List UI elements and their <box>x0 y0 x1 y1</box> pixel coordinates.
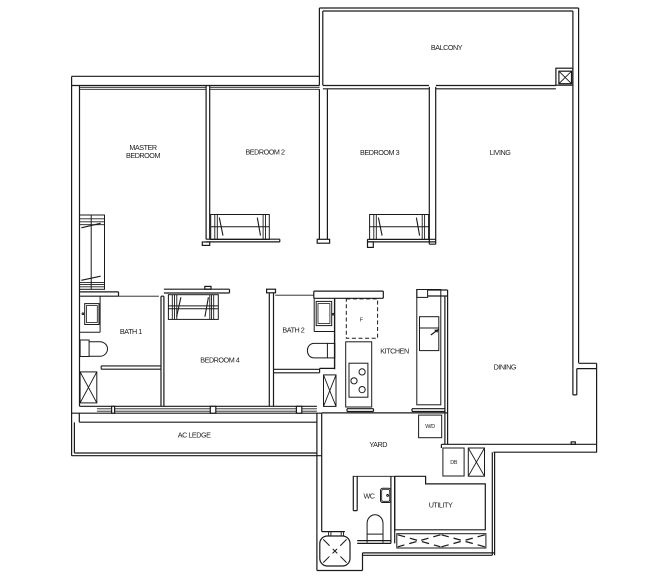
svg-text:W/D: W/D <box>425 424 435 430</box>
svg-text:LIVING: LIVING <box>490 148 512 157</box>
svg-text:BALCONY: BALCONY <box>431 43 463 52</box>
svg-text:BEDROOM 3: BEDROOM 3 <box>360 148 400 157</box>
svg-text:AC LEDGE: AC LEDGE <box>178 431 211 440</box>
svg-text:WC: WC <box>363 491 374 500</box>
svg-text:BEDROOM: BEDROOM <box>126 151 160 160</box>
svg-text:DB: DB <box>450 460 458 466</box>
svg-text:DINING: DINING <box>494 363 517 372</box>
svg-text:BATH 2: BATH 2 <box>282 325 304 334</box>
svg-text:BEDROOM 2: BEDROOM 2 <box>245 148 285 157</box>
svg-text:BEDROOM 4: BEDROOM 4 <box>200 356 240 365</box>
svg-text:UTILITY: UTILITY <box>429 501 453 510</box>
svg-text:BATH 1: BATH 1 <box>120 327 142 336</box>
svg-text:KITCHEN: KITCHEN <box>380 347 409 356</box>
svg-text:YARD: YARD <box>369 440 387 449</box>
